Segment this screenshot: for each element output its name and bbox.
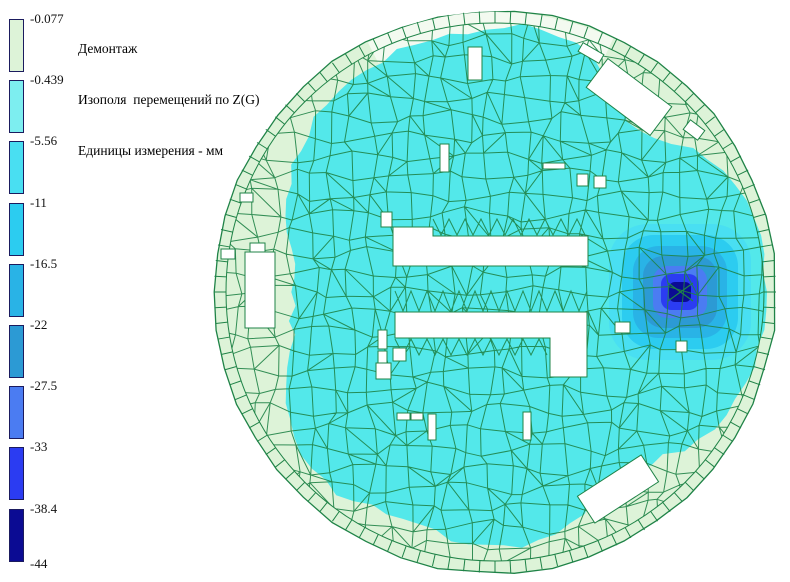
legend-swatch-4 (9, 264, 24, 317)
header-units: Единицы измерения - мм (78, 142, 260, 159)
header-load-case: Демонтаж (78, 40, 260, 57)
fea-viewport: Демонтаж Изополя перемещений по Z(G) Еди… (0, 0, 790, 582)
legend-swatch-8 (9, 509, 24, 562)
legend-swatch-0 (9, 19, 24, 72)
legend-label-6: -27.5 (30, 378, 57, 394)
legend-swatch-6 (9, 386, 24, 439)
legend-label-5: -22 (30, 317, 47, 333)
legend-label-9: -44 (30, 556, 47, 572)
legend-swatch-3 (9, 203, 24, 256)
legend-swatch-2 (9, 141, 24, 194)
legend-swatch-5 (9, 325, 24, 378)
legend-label-1: -0.439 (30, 72, 64, 88)
legend-swatch-7 (9, 447, 24, 500)
legend-label-4: -16.5 (30, 256, 57, 272)
plot-header: Демонтаж Изополя перемещений по Z(G) Еди… (78, 6, 260, 193)
legend-swatch-1 (9, 80, 24, 133)
legend-label-8: -38.4 (30, 501, 57, 517)
legend-label-0: -0.077 (30, 11, 64, 27)
legend-label-7: -33 (30, 439, 47, 455)
legend-label-2: -5.56 (30, 133, 57, 149)
header-result-type: Изополя перемещений по Z(G) (78, 91, 260, 108)
legend-label-3: -11 (30, 195, 47, 211)
